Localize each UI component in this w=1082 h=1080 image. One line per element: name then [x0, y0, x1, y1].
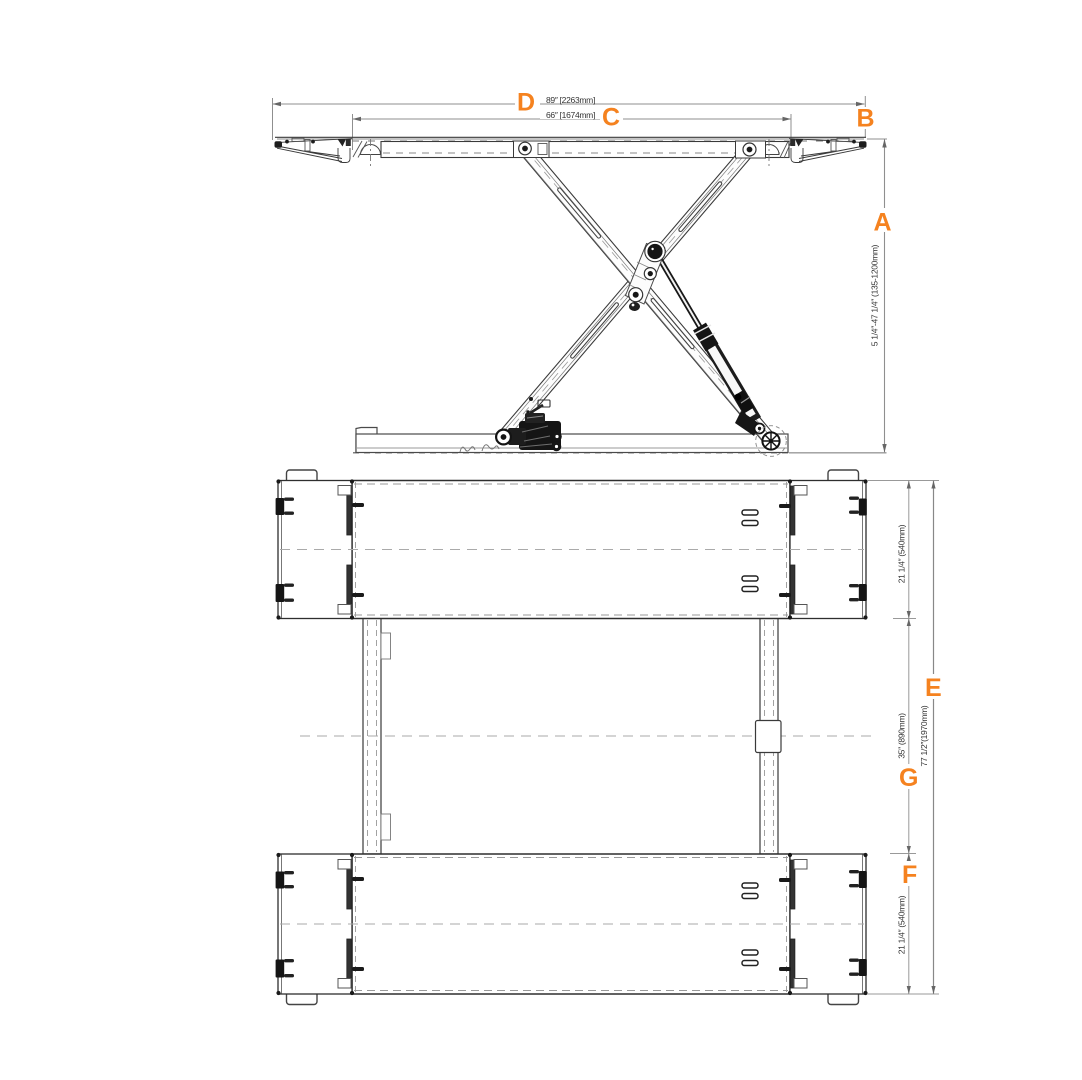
svg-text:21 1/4″ (540mm): 21 1/4″ (540mm) — [897, 524, 907, 583]
svg-text:E: E — [925, 674, 942, 702]
svg-text:5 1/4″-47 1/4″ (135-1200mm): 5 1/4″-47 1/4″ (135-1200mm) — [870, 244, 880, 346]
svg-text:21 1/4″ (540mm): 21 1/4″ (540mm) — [897, 895, 907, 954]
svg-text:B: B — [857, 105, 875, 133]
svg-text:D: D — [517, 89, 535, 117]
svg-text:A: A — [874, 209, 892, 237]
svg-text:35″ (890mm): 35″ (890mm) — [897, 713, 907, 759]
svg-text:G: G — [899, 764, 918, 792]
svg-text:77 1/2″(1970mm): 77 1/2″(1970mm) — [919, 705, 929, 766]
svg-text:89″ [2263mm]: 89″ [2263mm] — [546, 95, 595, 105]
svg-text:C: C — [602, 104, 620, 132]
svg-text:F: F — [902, 861, 917, 889]
svg-text:66″ [1674mm]: 66″ [1674mm] — [546, 110, 595, 120]
